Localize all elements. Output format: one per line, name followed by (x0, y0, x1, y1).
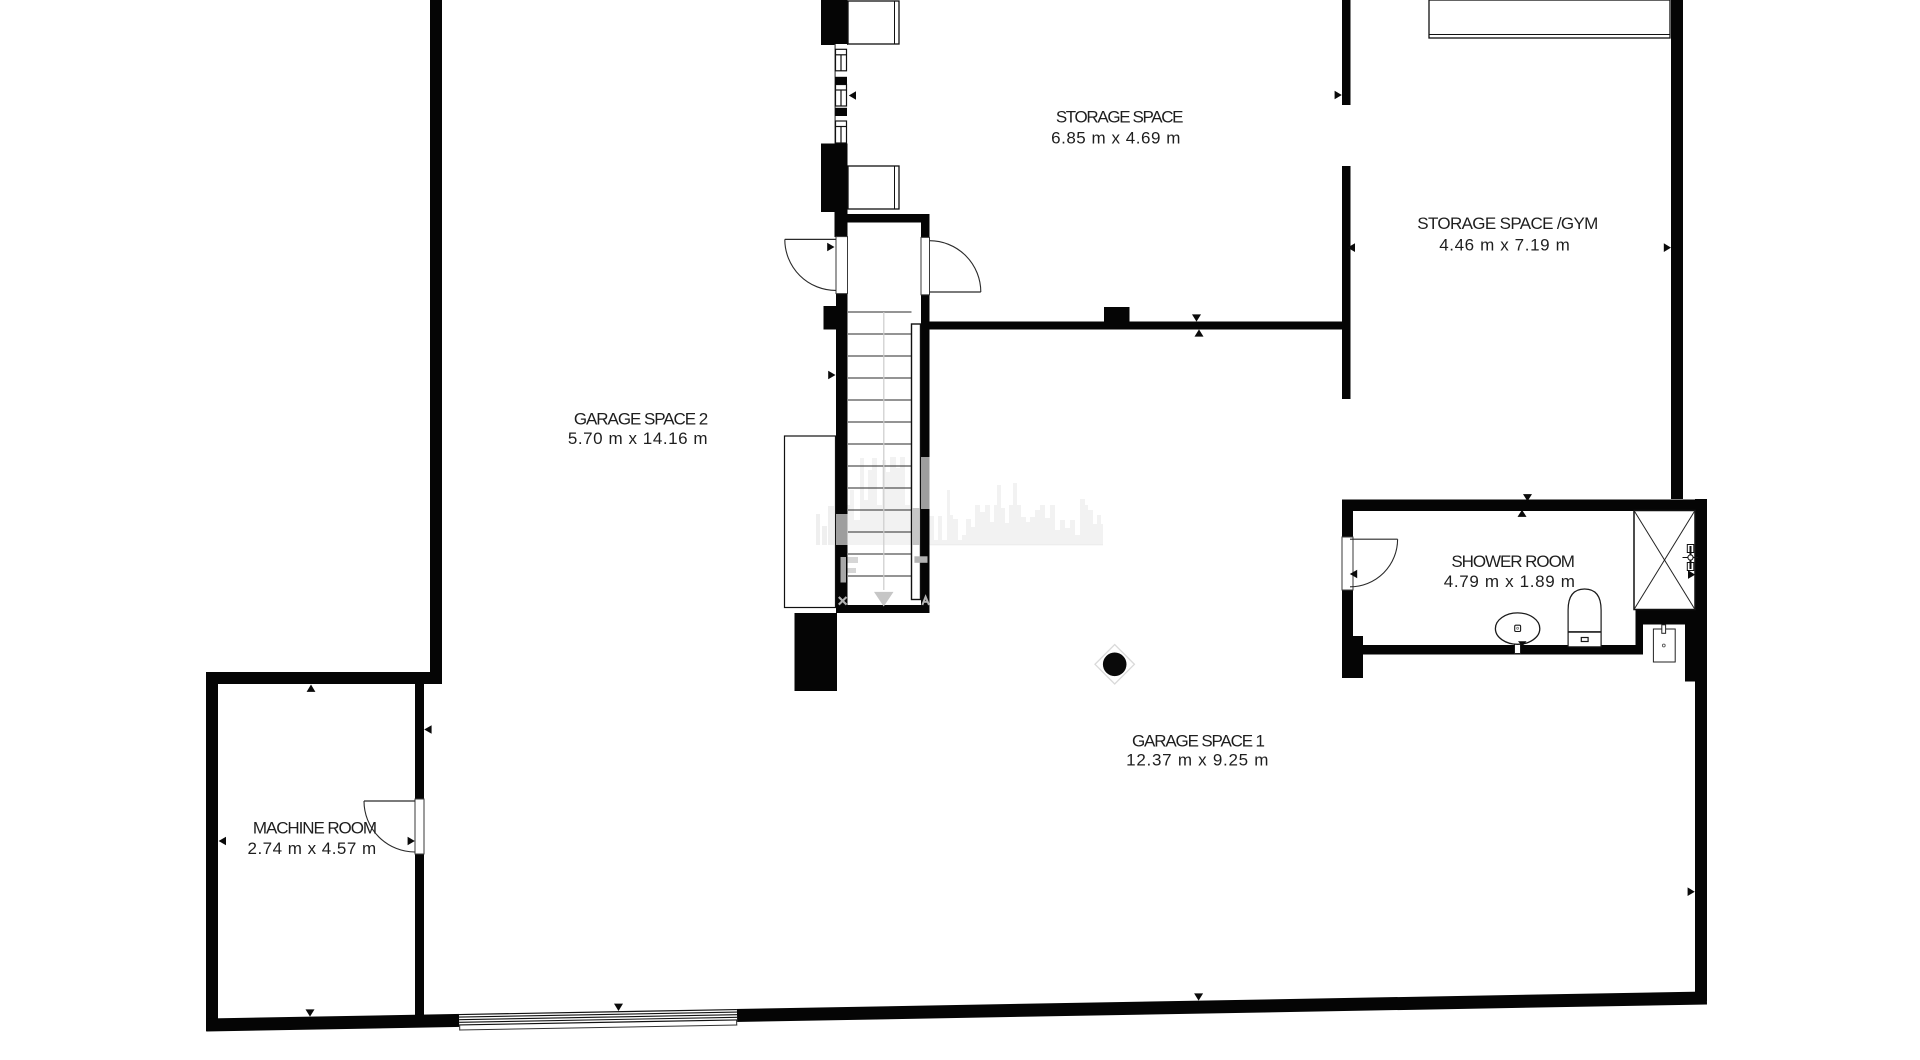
svg-text:12.37 m x 9.25 m: 12.37 m x 9.25 m (1126, 751, 1269, 770)
svg-text:SHOWER ROOM: SHOWER ROOM (1451, 552, 1574, 571)
svg-text:STORAGE SPACE /GYM: STORAGE SPACE /GYM (1417, 214, 1597, 233)
svg-text:2.74 m x 4.57 m: 2.74 m x 4.57 m (248, 839, 377, 858)
svg-text:5.70 m x 14.16 m: 5.70 m x 14.16 m (568, 429, 708, 448)
svg-text:GARAGE SPACE 1: GARAGE SPACE 1 (1132, 731, 1265, 750)
svg-text:4.79 m x 1.89 m: 4.79 m x 1.89 m (1444, 572, 1576, 591)
svg-text:MACHINE ROOM: MACHINE ROOM (253, 818, 376, 837)
svg-text:STORAGE SPACE: STORAGE SPACE (1056, 107, 1183, 126)
svg-text:GARAGE SPACE 2: GARAGE SPACE 2 (574, 409, 708, 428)
svg-text:6.85 m x 4.69 m: 6.85 m x 4.69 m (1051, 129, 1181, 148)
svg-text:4.46 m x 7.19 m: 4.46 m x 7.19 m (1439, 235, 1570, 254)
